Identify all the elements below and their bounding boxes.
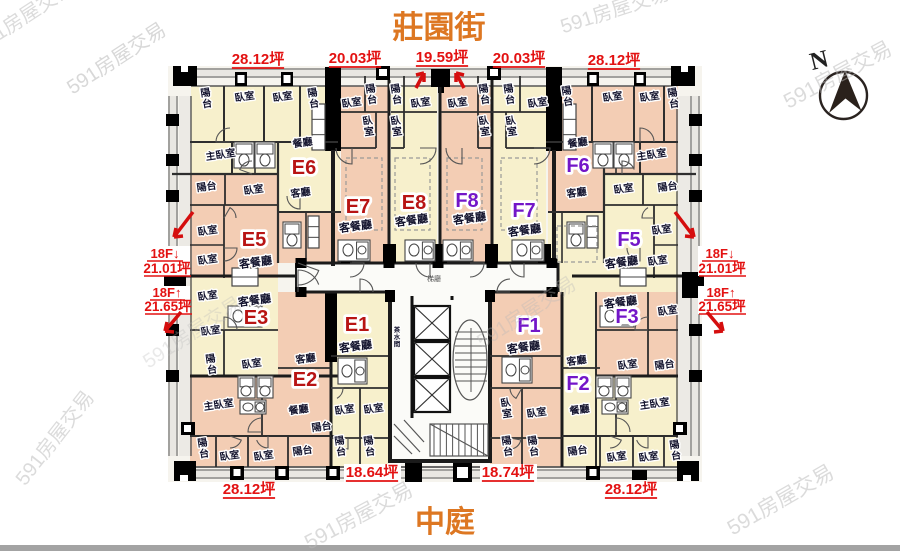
svg-text:18F↓: 18F↓ <box>151 246 180 261</box>
svg-text:E5: E5 <box>242 229 266 251</box>
svg-text:28.12坪: 28.12坪 <box>232 51 285 68</box>
svg-text:21.01坪: 21.01坪 <box>698 261 746 276</box>
svg-text:E1: E1 <box>345 314 369 336</box>
svg-text:F8: F8 <box>455 190 478 212</box>
svg-text:591房屋交易: 591房屋交易 <box>723 461 838 540</box>
svg-text:28.12坪: 28.12坪 <box>588 52 641 69</box>
svg-text:21.01坪: 21.01坪 <box>143 261 191 276</box>
svg-text:591房屋交易: 591房屋交易 <box>0 0 78 57</box>
svg-text:18.64坪: 18.64坪 <box>346 464 399 481</box>
svg-text:21.65坪: 21.65坪 <box>144 299 192 314</box>
svg-text:E2: E2 <box>293 369 317 391</box>
svg-text:18F↑: 18F↑ <box>153 285 182 300</box>
svg-text:591房屋交易: 591房屋交易 <box>301 478 417 551</box>
svg-text:18.74坪: 18.74坪 <box>482 464 535 481</box>
svg-text:28.12坪: 28.12坪 <box>605 481 658 498</box>
svg-text:21.65坪: 21.65坪 <box>698 299 746 314</box>
svg-text:591房屋交易: 591房屋交易 <box>558 0 673 38</box>
svg-text:591房屋交易: 591房屋交易 <box>11 386 99 490</box>
svg-text:莊園街: 莊園街 <box>393 10 486 45</box>
svg-text:28.12坪: 28.12坪 <box>223 481 276 498</box>
svg-text:18F↓: 18F↓ <box>706 246 735 261</box>
svg-text:梯廳: 梯廳 <box>427 274 441 283</box>
svg-text:F5: F5 <box>617 229 640 251</box>
svg-text:E3: E3 <box>244 307 268 329</box>
svg-text:F7: F7 <box>512 200 535 222</box>
svg-text:20.03坪: 20.03坪 <box>493 50 546 67</box>
svg-text:E6: E6 <box>292 157 316 179</box>
svg-text:19.59坪: 19.59坪 <box>416 49 469 66</box>
svg-text:18F↑: 18F↑ <box>707 285 736 300</box>
svg-text:E8: E8 <box>402 192 426 214</box>
svg-text:F6: F6 <box>566 155 589 177</box>
svg-text:中庭: 中庭 <box>415 505 475 539</box>
svg-text:F2: F2 <box>566 373 589 395</box>
svg-text:F3: F3 <box>615 306 638 328</box>
svg-text:591房屋交易: 591房屋交易 <box>63 18 171 99</box>
svg-text:20.03坪: 20.03坪 <box>329 50 382 67</box>
svg-text:E7: E7 <box>346 196 370 218</box>
svg-text:茶水間: 茶水間 <box>393 325 401 348</box>
